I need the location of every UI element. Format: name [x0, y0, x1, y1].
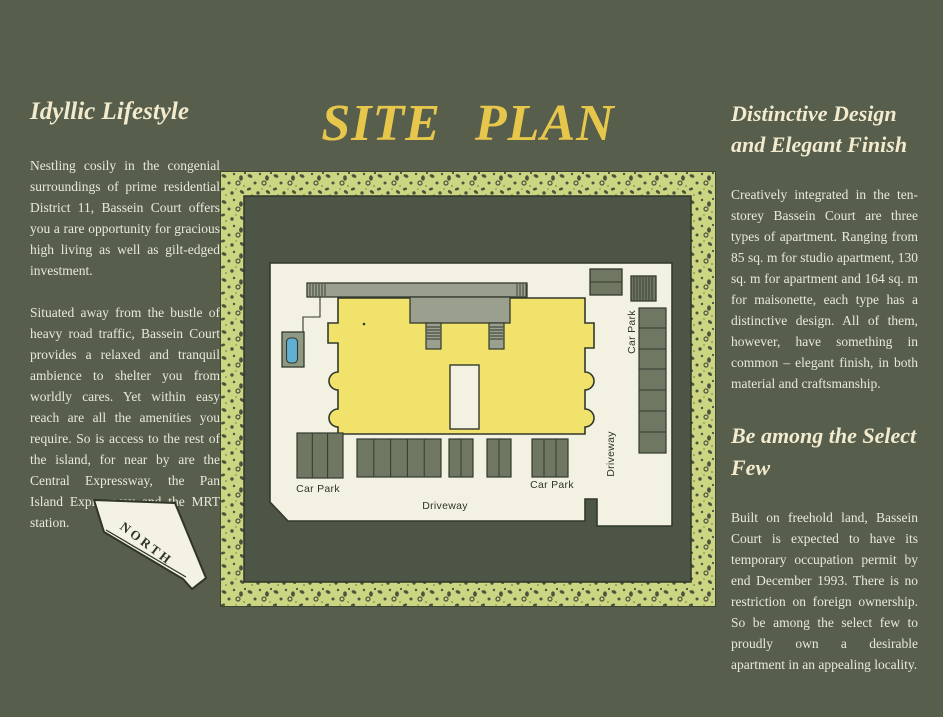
- right-paragraph-2: Built on freehold land, Bassein Court is…: [731, 507, 918, 675]
- label-driveway-bottom: Driveway: [422, 500, 468, 512]
- entrance-block: [410, 297, 510, 323]
- label-car-park-left: Car Park: [296, 483, 340, 495]
- covered-walkway: [307, 283, 527, 297]
- north-arrow: NORTH: [80, 487, 220, 602]
- left-column: Idyllic Lifestyle Nestling cosily in the…: [30, 98, 220, 533]
- swimming-pool: [287, 338, 298, 363]
- ramp-hatch: [634, 277, 652, 300]
- parking-stalls-southwest: [297, 433, 343, 478]
- parking-stalls-south-4: [532, 439, 568, 477]
- right-heading-2: Be among the Select Few: [731, 420, 918, 484]
- page-title: SITE PLAN: [220, 94, 716, 153]
- north-arrow-drawing: NORTH: [80, 487, 220, 602]
- right-heading-1: Distinctive Design and Elegant Finish: [731, 98, 918, 160]
- courtyard: [450, 365, 479, 429]
- label-driveway-right: Driveway: [605, 431, 617, 477]
- label-car-park-top-right: Car Park: [626, 310, 638, 354]
- right-paragraph-1: Creatively integrated in the ten-storey …: [731, 184, 918, 394]
- right-column: Distinctive Design and Elegant Finish Cr…: [731, 98, 918, 675]
- parking-stalls-east: [639, 308, 666, 453]
- parking-stalls-south-1: [357, 439, 441, 477]
- left-heading: Idyllic Lifestyle: [30, 98, 220, 127]
- plan-dot: [363, 323, 366, 326]
- brochure-page: Idyllic Lifestyle Nestling cosily in the…: [0, 0, 943, 717]
- site-plan-drawing: Car Park Driveway Car Park Driveway Car …: [220, 171, 716, 607]
- site-plan-figure: Car Park Driveway Car Park Driveway Car …: [220, 171, 716, 607]
- label-car-park-right: Car Park: [530, 479, 574, 491]
- left-paragraph-1: Nestling cosily in the congenial surroun…: [30, 155, 220, 281]
